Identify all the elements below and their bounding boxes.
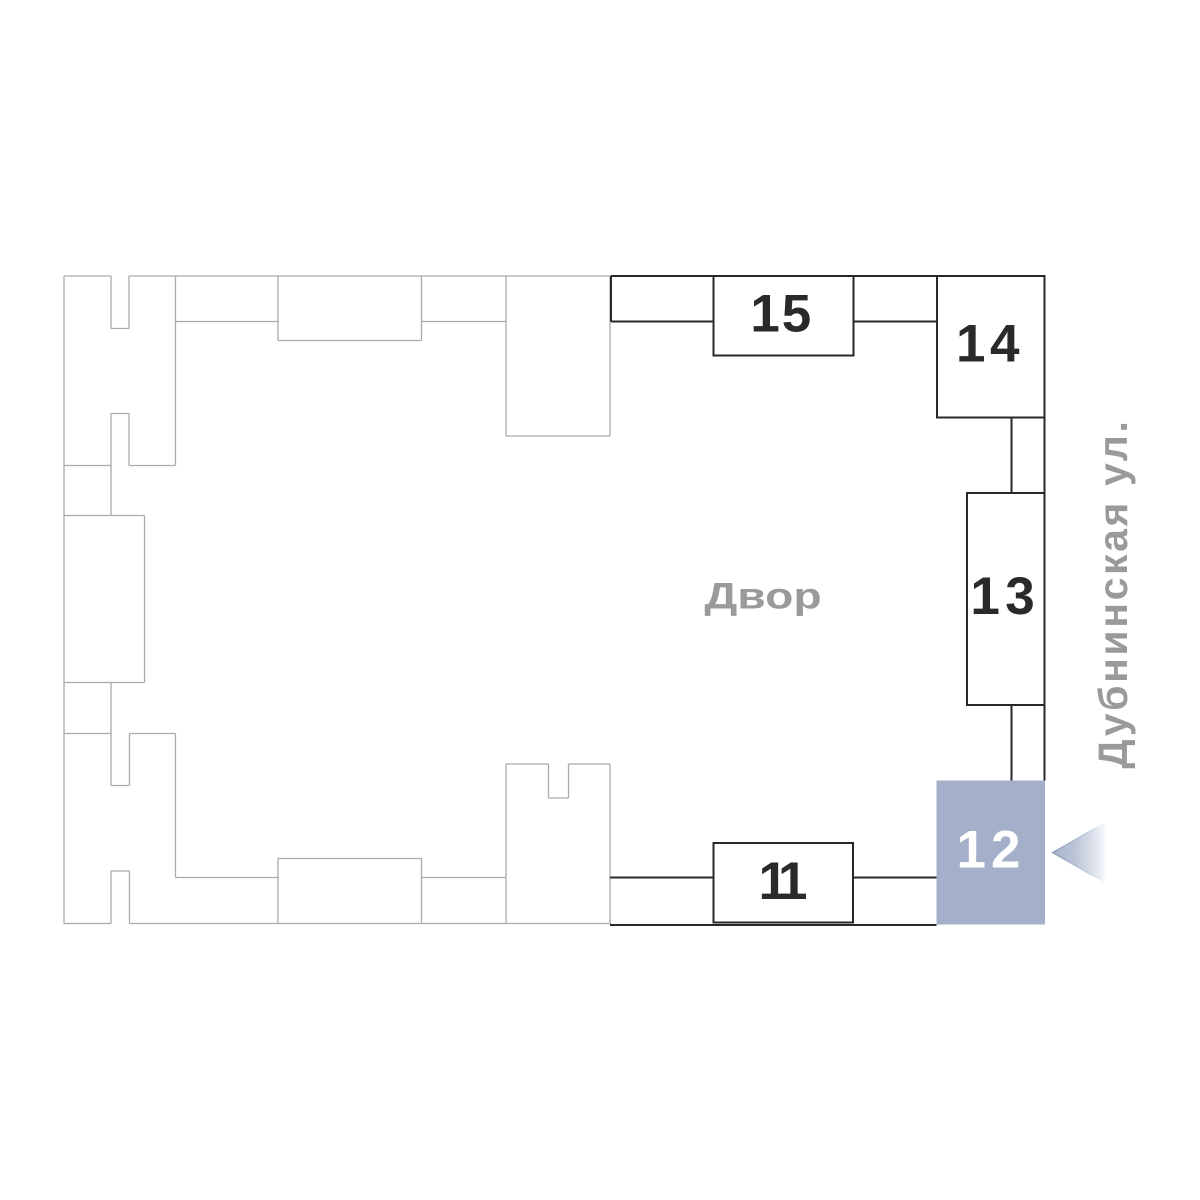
svg-text:Дубнинская ул.: Дубнинская ул. <box>1090 418 1136 768</box>
svg-text:14: 14 <box>956 315 1024 374</box>
svg-text:13: 13 <box>970 567 1040 626</box>
svg-text:Двор: Двор <box>704 575 821 617</box>
svg-text:15: 15 <box>750 285 813 344</box>
svg-text:11: 11 <box>758 852 806 911</box>
svg-text:12: 12 <box>957 821 1026 880</box>
